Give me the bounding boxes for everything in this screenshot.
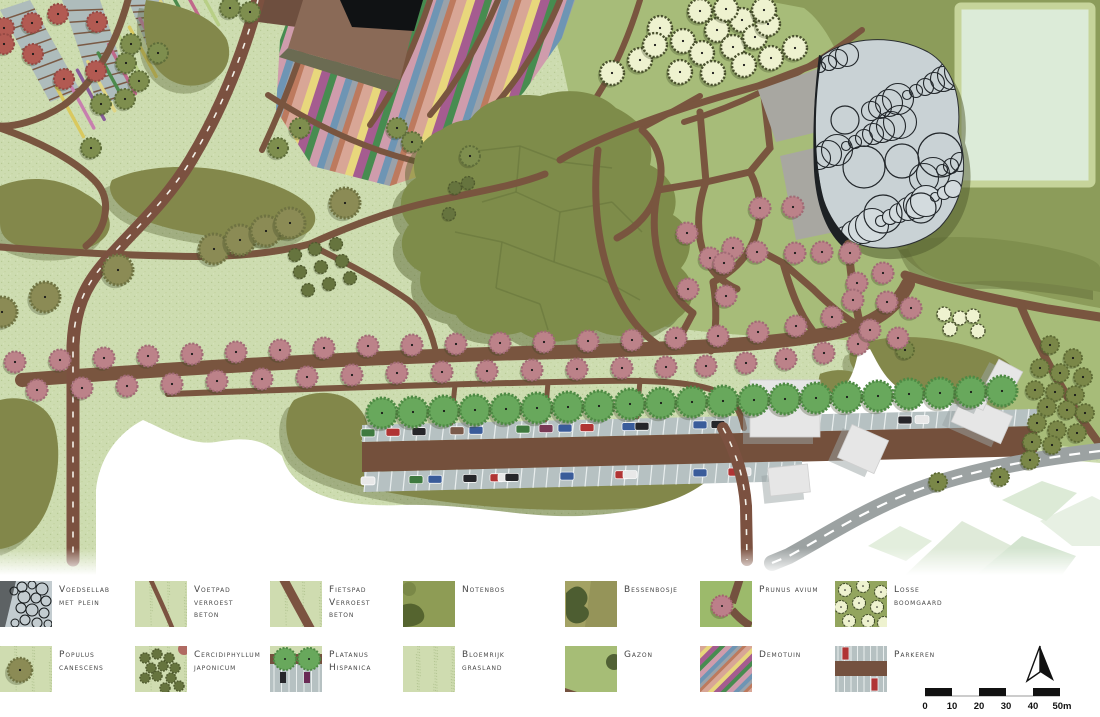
legend-label: Losse boomgaard	[894, 581, 943, 627]
legend-label: Cercidiphyllum japonicum	[194, 646, 261, 692]
scale-label: 0	[922, 701, 927, 712]
legend-item-prunus-avium: Prunus avium	[700, 581, 819, 627]
legend-swatch-gazon-icon	[565, 646, 617, 692]
legend-item-notenbos: Notenbos	[403, 581, 505, 627]
legend-label: Voetpad verroest beton	[194, 581, 233, 627]
legend-item-bessenbosje: Bessenbosje	[565, 581, 678, 627]
legend-swatch-cercidiphyllum-icon	[135, 646, 187, 692]
legend-label: Bessenbosje	[624, 581, 678, 627]
legend-item-populus-canescens: Populus canescens	[0, 646, 104, 692]
scale-label: 10	[947, 701, 958, 712]
legend-swatch-voedsellab-icon	[0, 581, 52, 627]
site-plan-map	[0, 0, 1100, 575]
legend-swatch-platanus-icon	[270, 646, 322, 692]
legend-label: Platanus Hispanica	[329, 646, 371, 692]
legend-swatch-demotuin-icon	[700, 646, 752, 692]
legend-swatch-fietspad-icon	[270, 581, 322, 627]
legend-item-cercidiphyllum: Cercidiphyllum japonicum	[135, 646, 261, 692]
scale-label: 20	[974, 701, 985, 712]
legend-swatch-parkeren-icon	[835, 646, 887, 692]
north-arrow-icon	[1027, 646, 1054, 681]
scale-bar: 0 10 20 30 40 50m	[922, 688, 1071, 712]
scale-label: 40	[1028, 701, 1039, 712]
legend-item-voetpad: Voetpad verroest beton	[135, 581, 233, 627]
legend-swatch-losse-boomgaard-icon	[835, 581, 887, 627]
legend-swatch-prunus-avium-icon	[700, 581, 752, 627]
legend-item-demotuin: Demotuin	[700, 646, 801, 692]
legend-label: Voedsellab met plein	[59, 581, 110, 627]
legend-label: Populus canescens	[59, 646, 104, 692]
map-furniture: 0 10 20 30 40 50m	[910, 640, 1100, 717]
legend-label: Demotuin	[759, 646, 801, 692]
legend-swatch-voetpad-icon	[135, 581, 187, 627]
legend-swatch-bloemrijk-icon	[403, 646, 455, 692]
scale-label: 30	[1001, 701, 1012, 712]
landscape-plan-page: Voedsellab met plein Voetpad verroest be…	[0, 0, 1100, 717]
scale-label: 50m	[1052, 701, 1071, 712]
legend-label: Notenbos	[462, 581, 505, 627]
legend-label: Fietspad Verroest beton	[329, 581, 370, 627]
legend-label: Prunus avium	[759, 581, 819, 627]
legend-swatch-bessenbosje-icon	[565, 581, 617, 627]
legend-item-gazon: Gazon	[565, 646, 653, 692]
legend-label: Gazon	[624, 646, 653, 692]
legend-item-losse-boomgaard: Losse boomgaard	[835, 581, 943, 627]
legend-swatch-notenbos-icon	[403, 581, 455, 627]
legend-item-fietspad: Fietspad Verroest beton	[270, 581, 370, 627]
legend-label: Bloemrijk grasland	[462, 646, 505, 692]
legend-item-platanus: Platanus Hispanica	[270, 646, 371, 692]
legend-item-voedsellab: Voedsellab met plein	[0, 581, 110, 627]
bottom-fade	[0, 548, 1100, 575]
legend-swatch-populus-icon	[0, 646, 52, 692]
legend-item-bloemrijk: Bloemrijk grasland	[403, 646, 505, 692]
